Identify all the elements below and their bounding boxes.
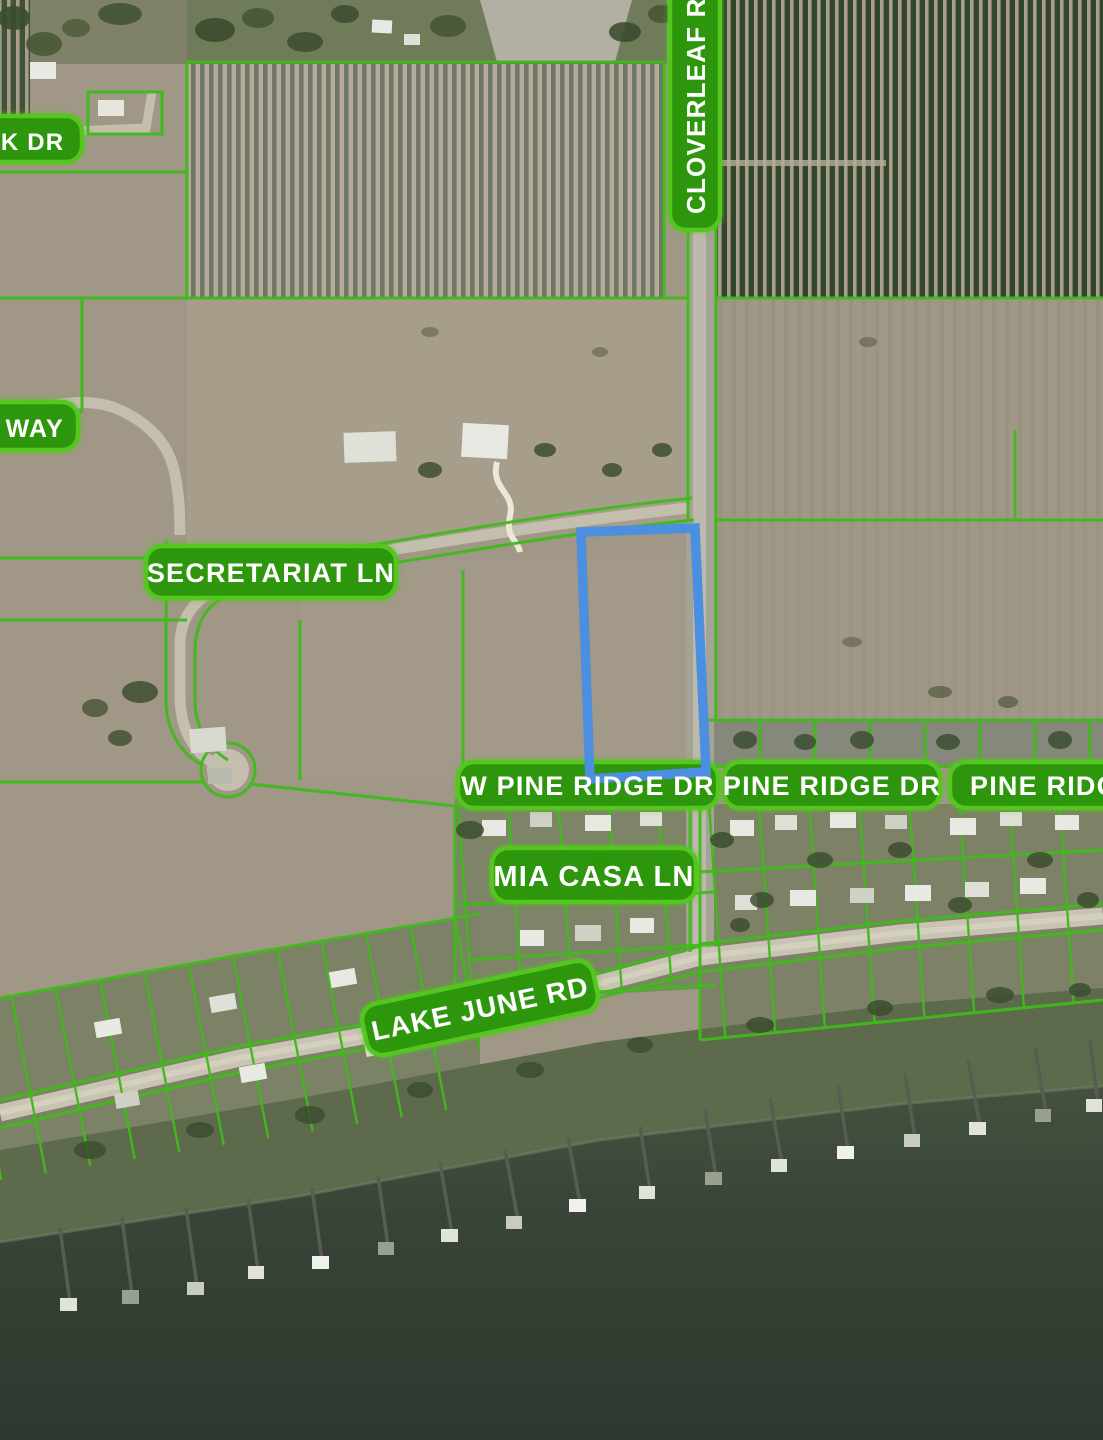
label-secretariat-ln: SECRETARIAT LN	[147, 558, 395, 588]
label-w-pine-ridge-dr: W PINE RIDGE DR	[461, 771, 715, 801]
label-pine-ridge-dr: PINE RIDGE DR	[723, 771, 941, 801]
label-d-way: D WAY	[0, 415, 64, 443]
label-mia-casa-ln: MIA CASA LN	[493, 861, 694, 893]
label-creek-dr: EK DR	[0, 129, 64, 156]
label-cloverleaf-rd: CLOVERLEAF RD	[681, 0, 711, 214]
map-viewport[interactable]: EK DR CLOVERLEAF RD D WAY SECRETARIAT LN…	[0, 0, 1103, 1440]
aerial-parcel-map[interactable]: EK DR CLOVERLEAF RD D WAY SECRETARIAT LN…	[0, 0, 1103, 1440]
label-pine-ridge-partial: PINE RIDGE	[970, 771, 1103, 801]
